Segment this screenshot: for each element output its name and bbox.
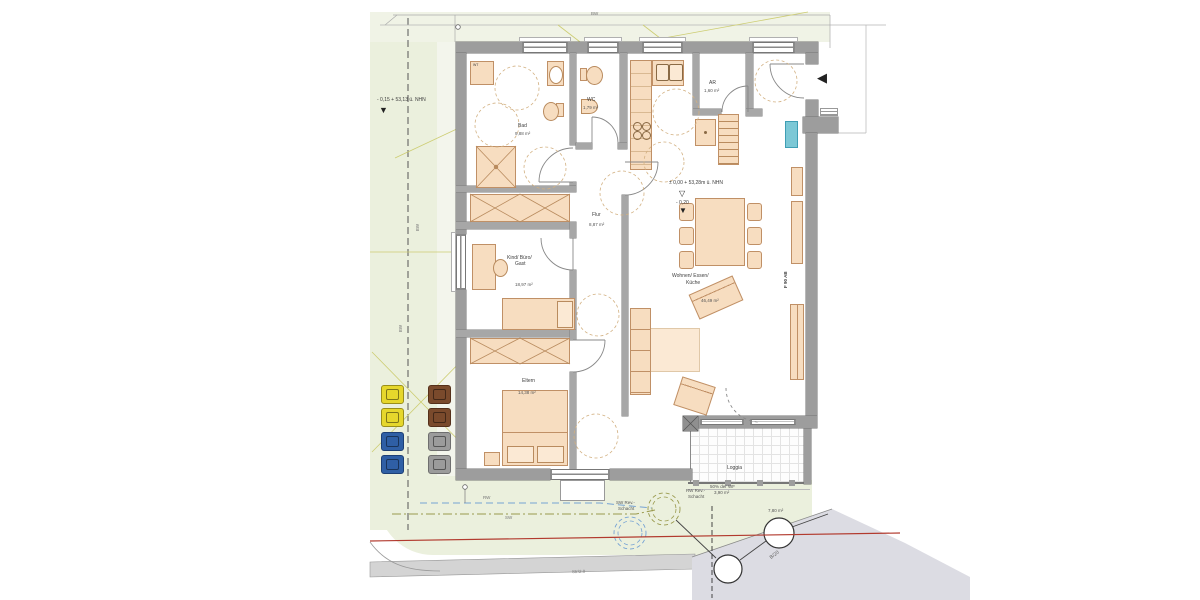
boundary-label-left-upper: BW: [415, 224, 420, 231]
rw-line-label: RW: [483, 495, 490, 500]
level-open-triangle-icon: ▽: [679, 190, 685, 198]
room-label-loggia: Loggia: [727, 466, 742, 472]
level-filled-triangle-icon: ▼: [679, 207, 687, 215]
room-label-ar: AR: [709, 81, 716, 87]
room-area-wohnen: 46,49 m²: [701, 298, 719, 303]
room-area-eltern: 14,38 m²: [518, 390, 536, 395]
loggia-note-1: 50% der WF: [710, 484, 735, 489]
fire-rating-label: F 90 AB: [783, 271, 788, 288]
rw-shaft-label-2: Schacht: [688, 494, 704, 499]
room-label-wc: WC: [587, 98, 595, 104]
room-label-wohnen-1: Wohnen/ Essen/: [672, 274, 709, 280]
boundary-label-left-lower: BW: [398, 325, 403, 332]
entrance-arrow-icon: ◀: [817, 71, 827, 84]
sw-line-label: SW: [505, 515, 512, 520]
room-label-eltern: Eltern: [522, 379, 535, 385]
column-x: [683, 416, 698, 431]
boundary-label-top: BW: [591, 11, 598, 16]
room-area-flur: 8,87 m²: [589, 222, 604, 227]
floor-plan-canvas: WT: [0, 0, 1200, 600]
rw-shaft-label-1: RW Rev.-: [686, 488, 705, 493]
loggia-note-2: 3,90 m²: [714, 490, 729, 495]
room-area-kind: 18,97 m²: [515, 282, 533, 287]
door-arcs: [539, 64, 804, 372]
room-area-ar: 1,60 m²: [704, 88, 719, 93]
plan-overlay: [0, 0, 1200, 600]
room-label-bad: Bad: [518, 124, 527, 130]
inside-level-text: ± 0,00 + 53,28m ü. NHN: [669, 181, 723, 187]
room-area-wc: 1,79 m²: [583, 105, 598, 110]
shower-drain: [494, 165, 498, 169]
room-label-flur: Flur: [592, 213, 601, 219]
sw-shaft-label-1: SW Rev.-: [616, 500, 635, 505]
outside-level-triangle-icon: ▼: [379, 106, 388, 115]
loggia-dim: 7,80 m²: [768, 508, 783, 513]
outside-level-text: - 0,15 + 53,13 ü. NHN: [377, 98, 426, 104]
room-label-wohnen-2: Küche: [686, 281, 700, 287]
loggia-door-arc: [726, 388, 760, 422]
street-label: Str/2.0: [572, 569, 585, 574]
room-area-bad: 9,88 m²: [515, 131, 530, 136]
sw-shaft-label-2: Schacht: [618, 506, 634, 511]
room-label-kind-2: Gast: [515, 262, 526, 268]
